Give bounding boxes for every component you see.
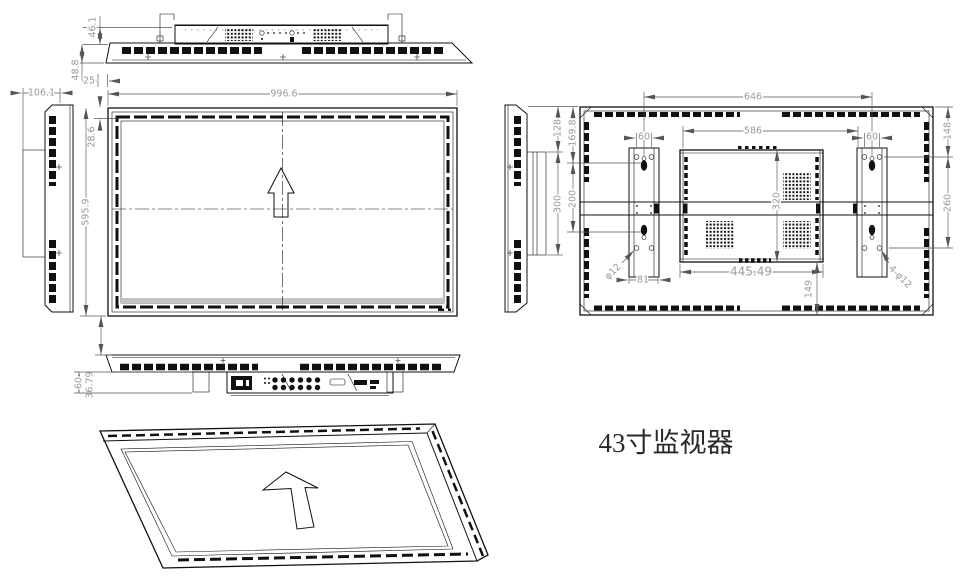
dim-side-bracket-span: 300 <box>553 195 564 213</box>
ir-sensor-icon <box>438 309 444 312</box>
mounting-bracket-right <box>857 148 887 277</box>
dim-back-inner: 586 <box>744 126 762 137</box>
electronics-box <box>680 148 823 263</box>
dim-top-raised: 46.1 <box>88 16 99 37</box>
dim-front-width: 996.6 <box>270 89 297 100</box>
dim-back-box-width: 445.49 <box>730 265 772 279</box>
dim-top-total: 48.8 <box>71 59 82 80</box>
dim-bottom-base: 60 <box>74 377 85 389</box>
vent-grid <box>706 221 734 249</box>
connector-ports <box>330 379 379 389</box>
dim-back-top-right: 148 <box>943 122 954 140</box>
dim-back-bracket-width: 81 <box>637 275 649 286</box>
up-arrow-icon <box>268 168 294 217</box>
dim-back-pitch-left: 200 <box>568 190 579 208</box>
dim-back-top-left: 169.8 <box>568 119 579 146</box>
top-controls <box>260 31 305 42</box>
vent-grid <box>783 172 811 200</box>
front-view: 996.6 28.6 595.9 <box>80 89 457 317</box>
dim-back-holes-right: 60 <box>866 132 878 143</box>
vent-grid <box>313 29 341 41</box>
dim-side-depth: 106.1 <box>28 88 55 99</box>
dim-top-offset: 25 <box>83 76 95 87</box>
dim-bottom-gap: 36.79 <box>85 371 96 398</box>
power-switch-icon <box>231 376 252 390</box>
vent-grid <box>225 29 253 41</box>
dim-front-bezel: 28.6 <box>87 126 98 147</box>
dim-front-height: 595.9 <box>81 198 92 225</box>
dim-back-hole-left: φ12 <box>603 262 624 283</box>
vent-grid <box>783 221 811 249</box>
up-arrow-icon <box>263 472 318 529</box>
dim-back-box-height: 320 <box>772 192 783 210</box>
dim-side-top-offset: 128 <box>553 119 564 137</box>
led-indicator-icon <box>448 309 451 312</box>
support-bar <box>580 202 933 215</box>
drawing-title: 43寸监视器 <box>599 428 734 458</box>
dim-back-centers: 646 <box>744 92 762 103</box>
dim-back-hole-right: 4-φ12 <box>886 263 913 290</box>
top-view: 46.1 48.8 25 <box>71 14 473 87</box>
engineering-drawing: 46.1 48.8 25 106.1 <box>0 0 971 578</box>
drawing-sheet: 46.1 48.8 25 106.1 <box>0 0 971 578</box>
back-view: 646 586 60 60 169.8 200 148 260 320 445.… <box>567 92 954 316</box>
connector-jacks <box>264 377 320 390</box>
left-side-view: 106.1 <box>13 88 73 313</box>
dim-back-holes-left: 60 <box>638 132 650 143</box>
isometric-view <box>100 424 488 568</box>
dim-back-bottom-gap: 149 <box>804 280 815 298</box>
bottom-view: 36.79 60 <box>74 316 461 399</box>
dim-back-pitch-right: 260 <box>943 194 954 212</box>
